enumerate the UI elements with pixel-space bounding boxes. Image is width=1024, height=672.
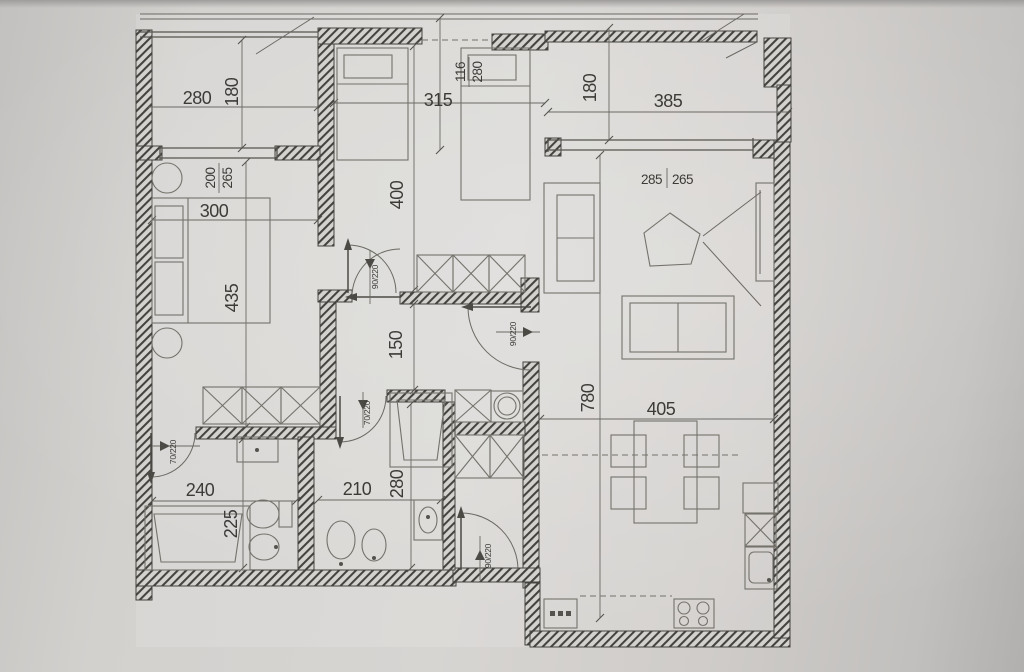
dim-bathroom-mid-width: 210 xyxy=(343,479,372,499)
wall-left-exterior xyxy=(136,30,152,600)
door-label: 70/220 xyxy=(168,439,178,464)
faucet-dot xyxy=(255,448,259,452)
faucet-dot xyxy=(339,562,343,566)
faucet-dot xyxy=(426,515,430,519)
svg-text:265: 265 xyxy=(220,167,235,188)
wall-balcony-right xyxy=(777,85,791,142)
wall-segment xyxy=(320,302,336,439)
dim-balcony-left-width: 280 xyxy=(183,88,212,108)
dim-bedroom-top-depth: 400 xyxy=(387,180,407,209)
dim-bathroom-left-depth: 225 xyxy=(221,509,241,538)
floorplan-drawing: 280 180 315 400 385 180 300 435 150 780 … xyxy=(0,0,1024,672)
dim-living-width: 405 xyxy=(647,399,676,419)
wall-segment xyxy=(318,44,334,246)
wall-window-pier xyxy=(136,146,162,160)
wall-bottom-connector xyxy=(453,568,540,582)
wall-bathroom-divider xyxy=(298,437,314,570)
faucet-dot xyxy=(274,545,278,549)
svg-text:265: 265 xyxy=(672,172,693,187)
door-label: 90/220 xyxy=(508,321,518,346)
wall-balcony-parapet xyxy=(545,31,757,42)
dim-bathroom-left-width: 240 xyxy=(186,480,215,500)
wall-bottom-kitchen xyxy=(530,631,790,647)
dim-bathroom-mid-depth: 280 xyxy=(387,469,407,498)
wall-right-exterior xyxy=(774,140,790,638)
wall-bottom xyxy=(136,570,456,586)
dim-living-depth: 780 xyxy=(578,383,598,412)
svg-text:116: 116 xyxy=(453,62,468,82)
dim-balcony-right-width: 385 xyxy=(654,91,683,111)
wall-segment xyxy=(443,402,455,570)
wall-segment xyxy=(318,28,422,44)
door-label: 90/220 xyxy=(370,264,380,289)
wall-window-pier xyxy=(753,140,774,158)
dim-hallway-width: 150 xyxy=(386,330,406,359)
door-label: 90/220 xyxy=(483,543,493,568)
apartment-floor xyxy=(136,14,790,647)
dim-balcony-right-depth: 180 xyxy=(580,73,600,102)
dim-bedroom-left-depth: 435 xyxy=(222,283,242,312)
dim-bedroom-left-width: 300 xyxy=(200,201,229,221)
svg-text:200: 200 xyxy=(203,167,218,188)
wall-segment xyxy=(400,292,535,304)
wall-living-left xyxy=(523,362,539,588)
svg-text:285: 285 xyxy=(641,172,662,187)
window-label-bedroom-left: 200 265 xyxy=(203,163,235,193)
faucet-dot xyxy=(372,556,376,560)
dim-balcony-left-depth: 180 xyxy=(222,77,242,106)
wall-segment xyxy=(318,290,352,302)
faucet-dot xyxy=(767,578,771,582)
wall-balcony-right xyxy=(764,38,791,87)
wall-closet-divider xyxy=(455,422,525,435)
dim-bedroom-top-width: 315 xyxy=(424,90,453,110)
floorplan-photo: 280 180 315 400 385 180 300 435 150 780 … xyxy=(0,0,1024,672)
wall-window-pier xyxy=(275,146,320,160)
svg-text:280: 280 xyxy=(470,61,485,82)
door-label: 70/220 xyxy=(362,400,372,425)
